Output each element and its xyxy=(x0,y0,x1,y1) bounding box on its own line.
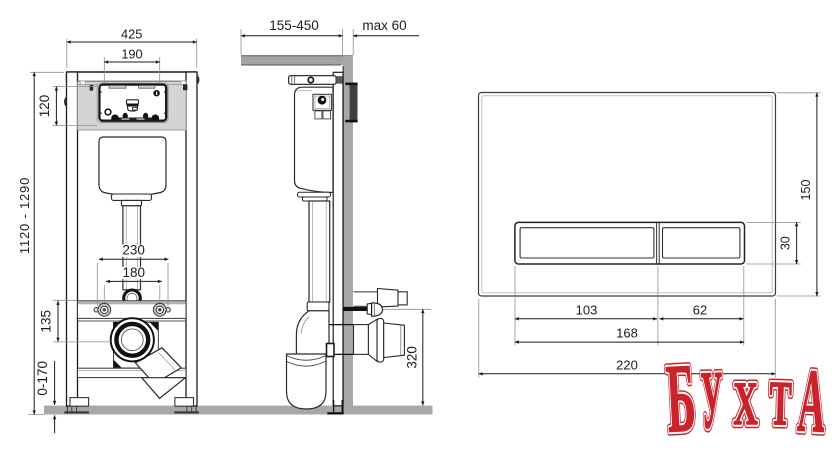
svg-text:155-450: 155-450 xyxy=(269,18,319,33)
svg-text:62: 62 xyxy=(693,302,707,317)
svg-text:103: 103 xyxy=(576,302,598,317)
svg-text:30: 30 xyxy=(779,236,793,250)
svg-text:Т: Т xyxy=(769,368,793,439)
svg-text:220: 220 xyxy=(616,357,638,372)
svg-text:230: 230 xyxy=(122,243,145,258)
svg-text:Б: Б xyxy=(664,344,698,453)
svg-text:max 60: max 60 xyxy=(362,18,406,33)
svg-text:1120 - 1290: 1120 - 1290 xyxy=(17,177,32,254)
svg-text:Х: Х xyxy=(733,370,758,438)
svg-text:120: 120 xyxy=(37,95,52,118)
svg-text:У: У xyxy=(700,353,725,446)
svg-text:425: 425 xyxy=(121,26,142,41)
svg-text:190: 190 xyxy=(121,46,142,61)
svg-text:А: А xyxy=(796,350,828,451)
svg-text:150: 150 xyxy=(799,180,813,201)
svg-text:180: 180 xyxy=(123,265,146,280)
svg-text:0-170: 0-170 xyxy=(35,361,50,396)
svg-text:320: 320 xyxy=(404,346,419,369)
svg-text:135: 135 xyxy=(39,310,54,333)
svg-text:168: 168 xyxy=(616,326,638,341)
